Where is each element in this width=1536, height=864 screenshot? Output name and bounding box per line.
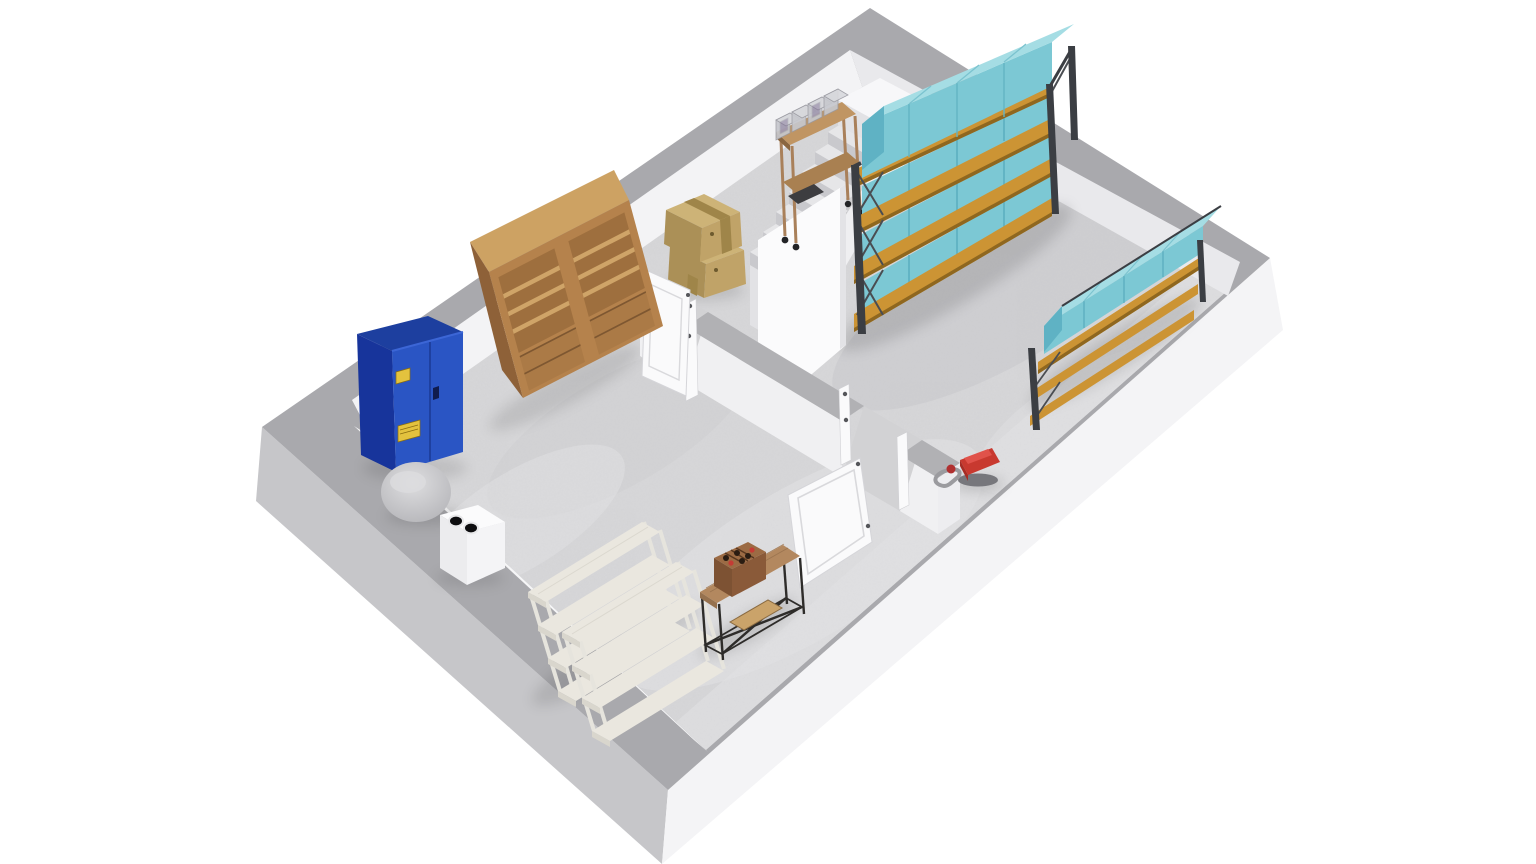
vacuum-base: [958, 474, 998, 487]
rack-post-back: [1068, 46, 1078, 140]
water-tank-dome: [381, 462, 451, 522]
stair-balustrade-edge: [840, 184, 846, 349]
cabinet-handle: [433, 386, 439, 400]
cabinet-front: [392, 332, 463, 472]
cabinet-side: [357, 334, 396, 472]
door-hinge: [686, 293, 690, 297]
door-hinge: [866, 524, 870, 528]
vacuum-hose-port: [947, 465, 956, 474]
floorplan-canvas: [0, 0, 1536, 864]
dome-highlight: [390, 471, 426, 493]
dome-body: [381, 462, 451, 522]
rack-top-bar: [1049, 50, 1071, 88]
cardboard-box-stack: [664, 194, 746, 298]
floorplan-3d-view: [0, 0, 1536, 864]
hazmat-storage-cabinet: [357, 316, 463, 472]
door-hinge: [856, 462, 860, 466]
